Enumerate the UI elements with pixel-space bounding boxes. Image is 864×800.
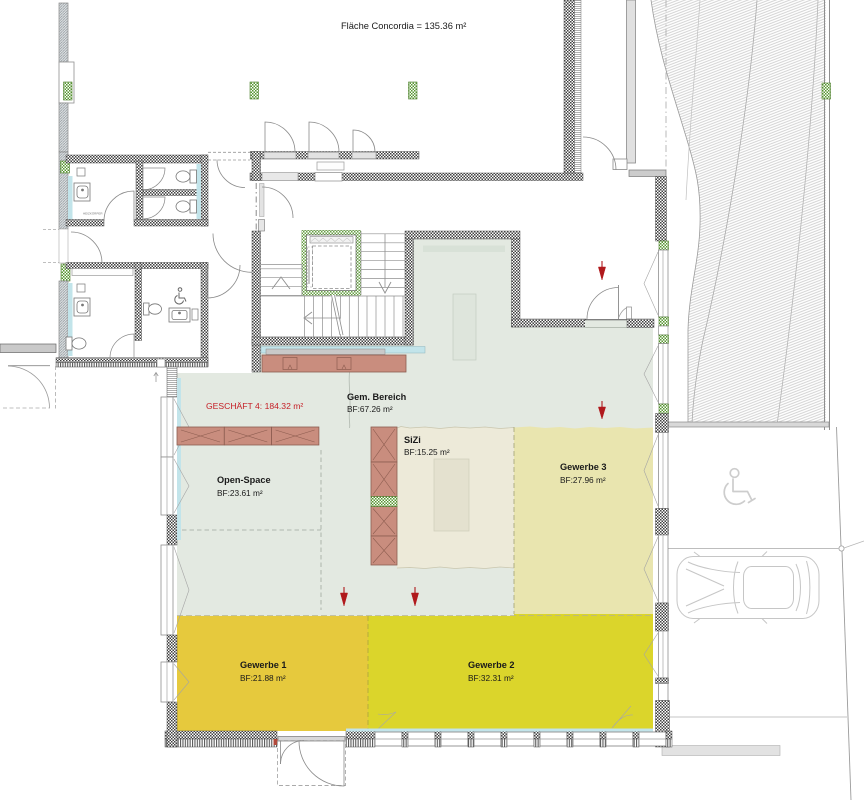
svg-text:Gem. Bereich: Gem. Bereich <box>347 392 407 402</box>
svg-text:BF:23.61 m²: BF:23.61 m² <box>217 488 263 498</box>
svg-text:BF:21.88 m²: BF:21.88 m² <box>240 673 286 683</box>
svg-text:BF:27.96 m²: BF:27.96 m² <box>560 475 606 485</box>
svg-text:BF:32.31 m²: BF:32.31 m² <box>468 673 514 683</box>
svg-text:Gewerbe 2: Gewerbe 2 <box>468 660 514 670</box>
svg-text:SiZi: SiZi <box>404 435 421 445</box>
svg-text:Gewerbe 3: Gewerbe 3 <box>560 462 606 472</box>
svg-text:HEIZKÖRPER: HEIZKÖRPER <box>83 212 103 216</box>
svg-text:Gewerbe 1: Gewerbe 1 <box>240 660 286 670</box>
svg-text:Fläche Concordia = 135.36 m²: Fläche Concordia = 135.36 m² <box>341 21 466 31</box>
svg-text:BF:15.25 m²: BF:15.25 m² <box>404 447 450 457</box>
svg-text:GESCHÄFT 4: 184.32 m²: GESCHÄFT 4: 184.32 m² <box>206 401 303 411</box>
svg-text:Open-Space: Open-Space <box>217 475 271 485</box>
svg-text:BF:67.26 m²: BF:67.26 m² <box>347 404 393 414</box>
